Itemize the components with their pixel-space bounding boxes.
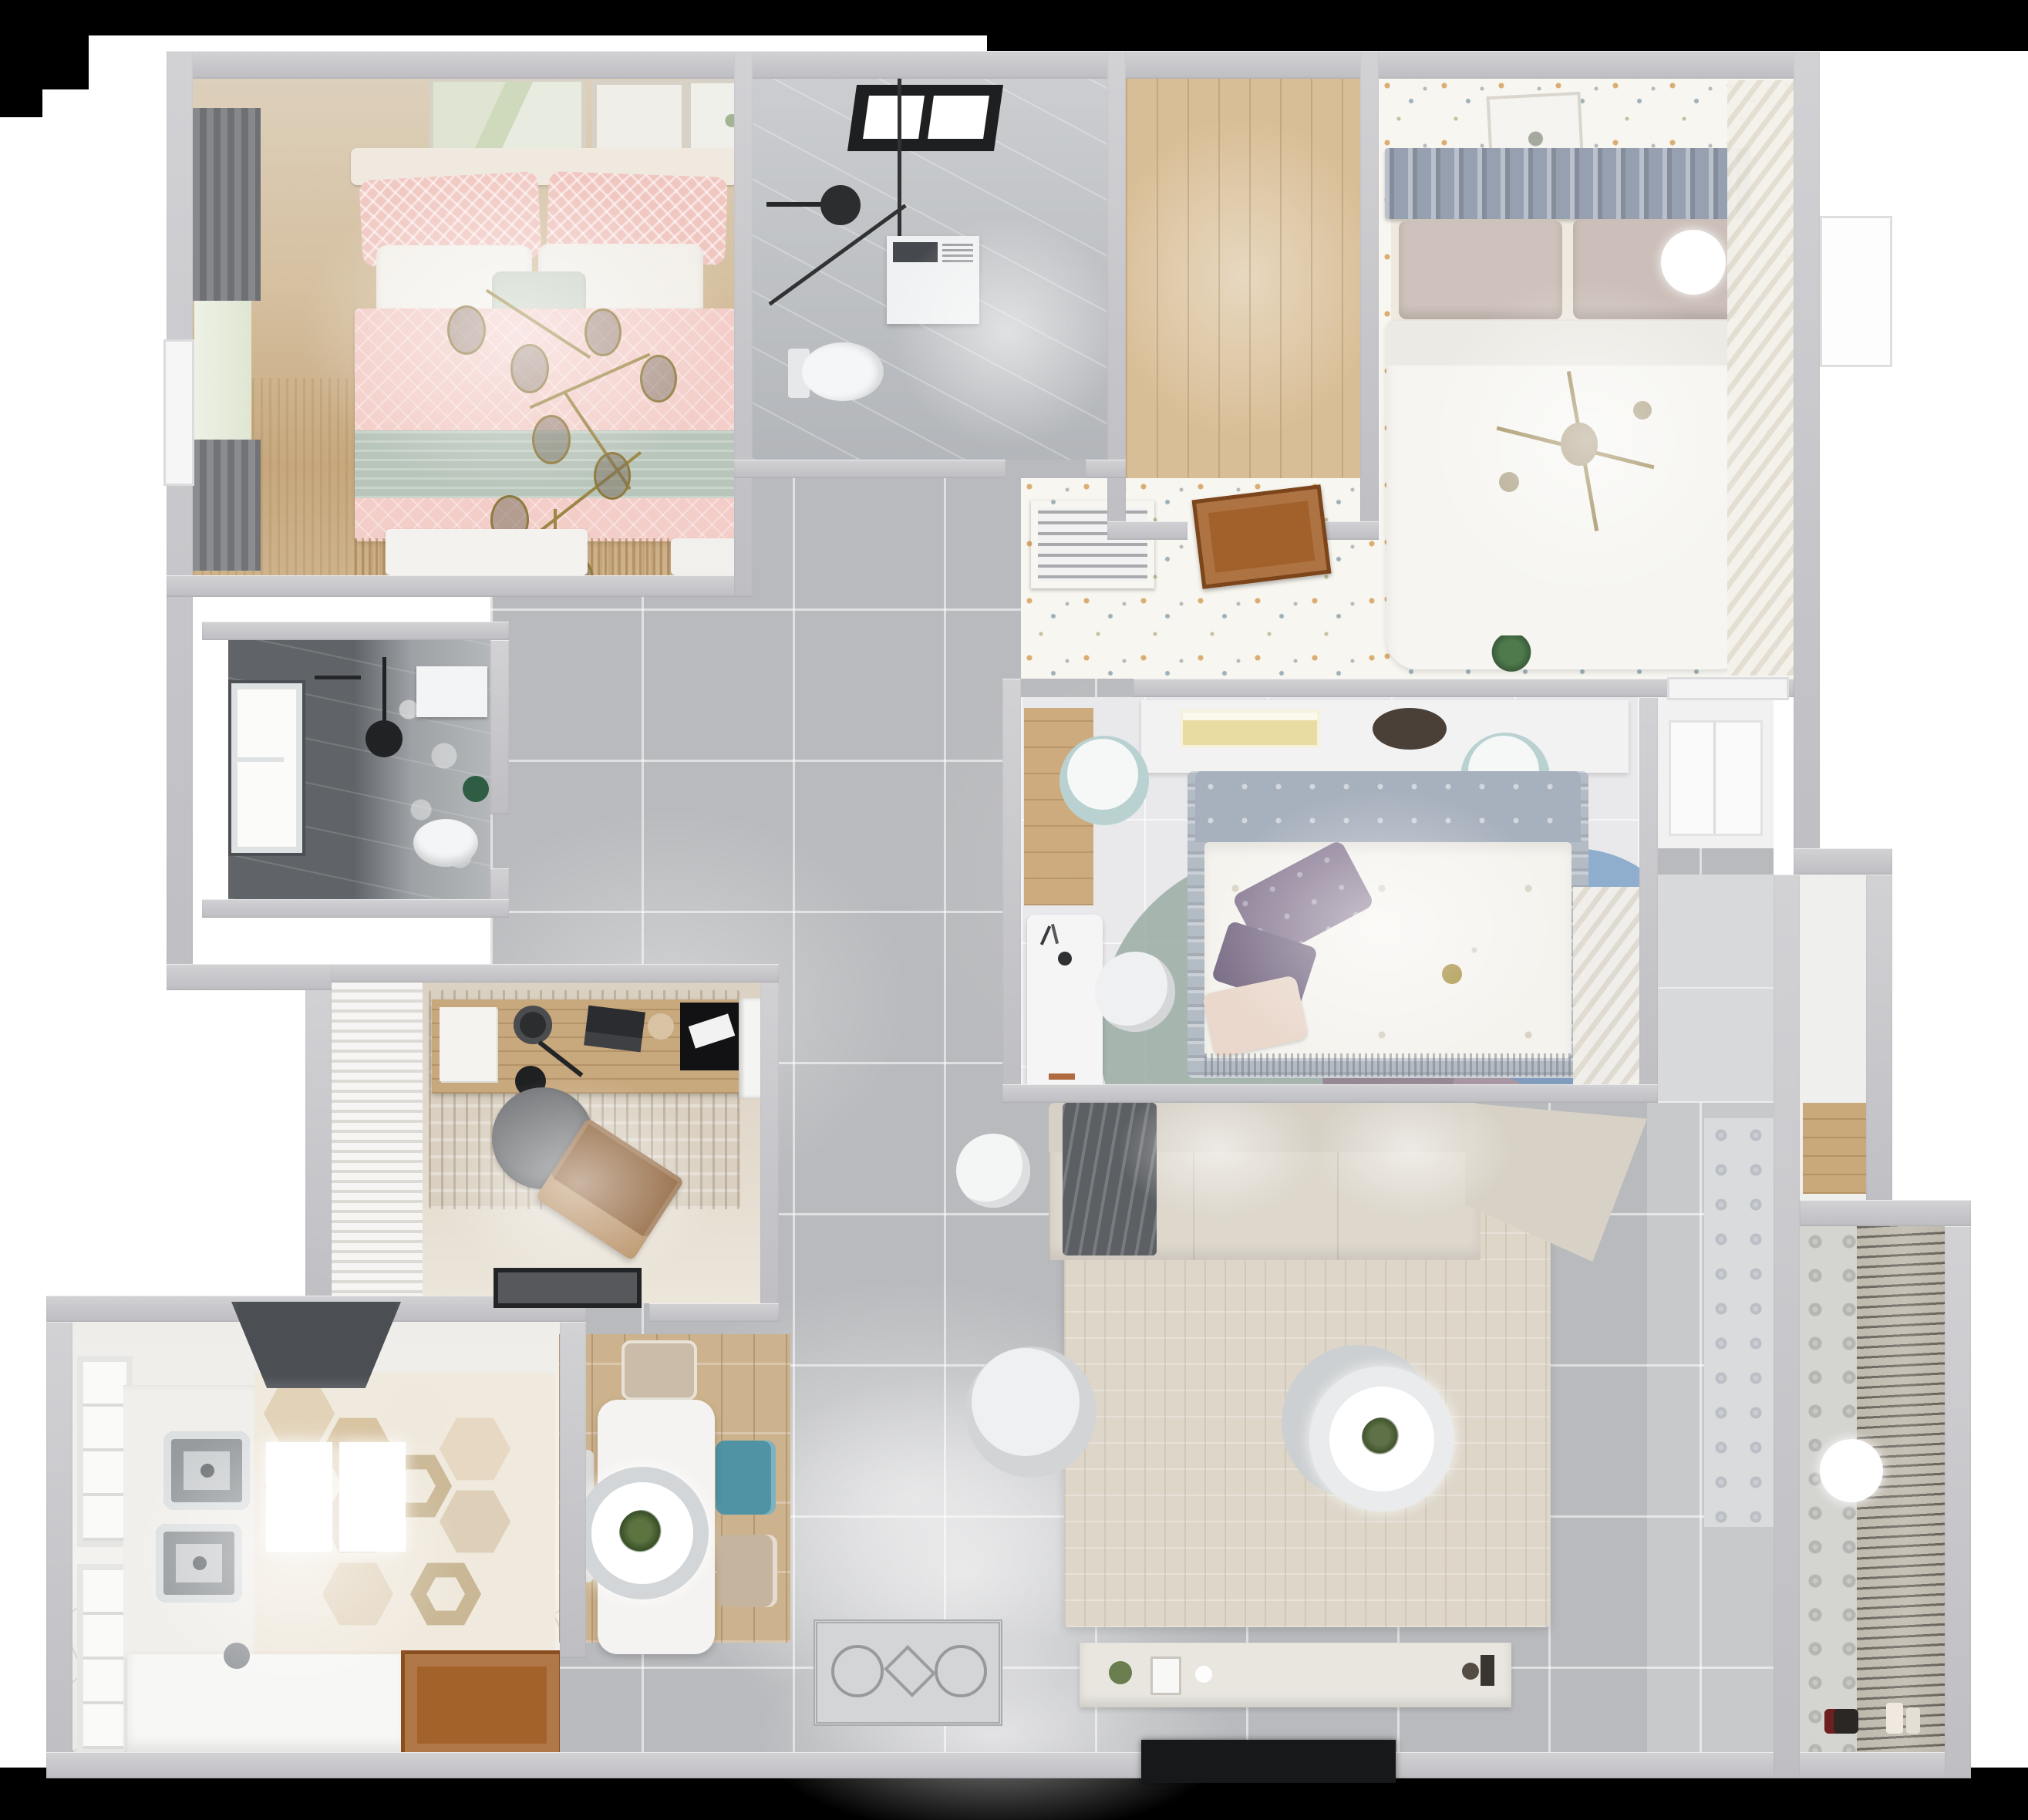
balcony	[1800, 1226, 1945, 1752]
wall-midroom-left	[1002, 679, 1021, 1103]
console-vase-dark	[1481, 1655, 1494, 1686]
toilet-bowl	[802, 342, 884, 401]
hex-tile	[262, 1380, 336, 1447]
bedroom-pink	[193, 77, 734, 575]
tv-screen	[1141, 1740, 1396, 1783]
sink-basin-1	[163, 1431, 250, 1510]
window-mullion	[237, 757, 284, 762]
toy-car	[1824, 1709, 1858, 1734]
slat-shutter-curtain	[332, 982, 423, 1303]
wall-midroom-right	[1639, 697, 1658, 1103]
drain	[200, 1464, 214, 1478]
hex-tile	[321, 1561, 395, 1627]
wall-study-left	[305, 982, 332, 1322]
wall-bath2-top	[202, 622, 509, 640]
wall-top	[173, 51, 1820, 79]
ac-vent	[1030, 500, 1155, 589]
bedroom-white-niche	[1820, 216, 1892, 367]
chandelier-bulb	[584, 308, 622, 356]
chandelier-bulb	[1499, 472, 1519, 492]
curtain-panel-bottom	[193, 440, 261, 571]
bedroom-white-door	[1667, 677, 1789, 700]
wall-foyer-right	[1866, 875, 1892, 1226]
plant	[1487, 635, 1536, 672]
washing-machine	[887, 236, 979, 324]
clay-pot	[648, 1013, 674, 1040]
letterbox-step-left	[0, 35, 89, 89]
foyer-upper-corridor	[1658, 875, 1774, 1103]
tv-console	[1080, 1643, 1511, 1707]
shower-head	[820, 185, 861, 225]
chandelier-bulb	[510, 344, 549, 393]
foyer-niche	[1800, 875, 1866, 1226]
wall-closet-bottom-a	[1107, 521, 1187, 540]
desk-knob	[1058, 952, 1072, 966]
coffee-plant	[1362, 1417, 1402, 1458]
wall-corridor-right	[1774, 875, 1800, 1778]
pendant-plant	[619, 1510, 665, 1556]
wall-kitchen-right	[560, 1322, 586, 1658]
window-pane	[928, 96, 989, 139]
console-plant	[1109, 1661, 1132, 1684]
wall-balcony-right	[1945, 1226, 1971, 1778]
desk-chair	[1095, 952, 1175, 1032]
art-frame-3	[686, 79, 734, 156]
plant	[463, 776, 489, 802]
sheer-curtain	[1727, 80, 1794, 676]
shower-arm	[766, 202, 827, 207]
dining-chair-teal	[716, 1441, 776, 1515]
dining-chair-top	[622, 1340, 697, 1400]
open-wood-door	[1192, 484, 1332, 589]
nightstand	[671, 538, 734, 575]
island-faucet	[224, 1643, 250, 1669]
stool-mint-left	[1059, 736, 1149, 825]
wall-pink-right	[734, 51, 753, 597]
ceiling-light	[1820, 1439, 1883, 1502]
chandelier-bulb	[640, 355, 677, 403]
letterbox-step-left2	[0, 89, 42, 117]
wall-right-upper	[1794, 51, 1820, 875]
sink-basin-2	[156, 1524, 242, 1603]
wall-pink-bottom	[167, 575, 753, 597]
window	[231, 683, 302, 853]
gold-sprig	[1442, 964, 1462, 984]
bottles	[1906, 1707, 1920, 1734]
dining-chair-beige	[717, 1535, 777, 1607]
wall-closet-right	[1360, 51, 1379, 540]
floorplan-canvas	[0, 0, 2028, 1820]
wall-foyer-top	[1794, 848, 1892, 875]
pillow-taupe-left	[1399, 221, 1562, 319]
wall-study-right	[760, 964, 779, 1322]
armchair	[965, 1346, 1097, 1478]
bed-headboard-tufted	[1195, 771, 1581, 842]
wall-midroom-bottom	[1002, 1084, 1658, 1103]
paper-stack	[440, 1007, 497, 1081]
glowing-cabinet-2	[339, 1442, 406, 1552]
side-table	[956, 1134, 1030, 1208]
wall-balcony-top	[1800, 1200, 1971, 1226]
photo-print	[689, 1013, 736, 1048]
window-light	[194, 293, 251, 455]
ceiling-shower-head	[366, 720, 403, 757]
chandelier-bulb	[594, 452, 631, 500]
walkin-closet	[1126, 77, 1360, 521]
black-doormat	[494, 1268, 642, 1308]
hex-tile-motif	[409, 1561, 483, 1627]
toilet	[413, 819, 478, 867]
bathroom-top	[753, 77, 1107, 460]
bed	[1187, 771, 1588, 1080]
letterbox-top-right	[987, 35, 2028, 51]
corridor-light-overlay	[1647, 1103, 1774, 1752]
pens	[1051, 924, 1059, 944]
pens	[1040, 925, 1051, 945]
foyer-closet	[1658, 697, 1774, 848]
chandelier-bulb	[1633, 401, 1652, 420]
wall-bath2-bottom	[202, 899, 509, 918]
wall-bath1-bottom-stub	[1086, 460, 1126, 478]
wall-cabinet	[416, 666, 487, 717]
console-cup	[1195, 1666, 1212, 1683]
bed-foot-fringe	[1204, 1053, 1572, 1077]
letterbox-top	[0, 0, 2028, 35]
closet-door-lines	[1669, 720, 1763, 836]
wall-bath2-right	[490, 640, 509, 814]
hex-tile	[379, 1380, 453, 1447]
sofa-throw-dark	[1063, 1103, 1157, 1255]
pink-bedroom-door	[163, 339, 194, 486]
camera-black	[514, 1006, 552, 1044]
entry-mat	[814, 1619, 1002, 1726]
desk-white	[1027, 915, 1103, 1084]
study	[332, 982, 760, 1303]
copper-handle	[1049, 1073, 1075, 1080]
window-pane	[863, 96, 925, 139]
mat-ornament	[935, 1645, 987, 1697]
headboard-slatted	[1385, 148, 1750, 219]
wood-bench-shelf	[1803, 1103, 1866, 1194]
hex-tile	[438, 1488, 512, 1555]
mat-ornament	[831, 1645, 884, 1697]
sheer-curtain	[1573, 887, 1639, 1084]
ceiling-light	[1661, 230, 1726, 295]
wall-bottom	[46, 1752, 1971, 1778]
bathroom-dark	[228, 640, 490, 899]
drain	[193, 1556, 207, 1570]
wall-left-cap	[167, 964, 332, 990]
chandelier-bulb	[532, 415, 571, 464]
wall-bath1-bottom	[734, 460, 1006, 478]
art-frame-2	[592, 80, 686, 156]
bowl-dark	[1373, 708, 1447, 750]
sconce	[315, 676, 361, 679]
console	[386, 529, 588, 575]
wall-study-top	[305, 964, 779, 982]
headboard-shelf	[1141, 700, 1629, 773]
wall-kitchen-left	[46, 1322, 72, 1778]
duvet-fold	[1386, 321, 1750, 366]
glowing-cabinet-1	[266, 1442, 332, 1552]
hex-tile	[438, 1416, 512, 1482]
photo-frame	[680, 1003, 743, 1070]
pendant-ring-lamp	[576, 1467, 709, 1599]
washer-controls	[893, 242, 938, 262]
bottles	[1886, 1703, 1903, 1734]
curtain-panel-top	[193, 108, 261, 301]
mat-ornament-bar	[884, 1645, 936, 1697]
wood-entry-door	[401, 1650, 560, 1752]
shower-rod	[382, 657, 386, 728]
armchair-seat	[972, 1348, 1080, 1456]
console-frame	[1150, 1657, 1181, 1695]
wall-study-bottom-b	[649, 1303, 779, 1322]
bedroom-middle	[1021, 697, 1639, 1084]
console-vase-dark2	[1462, 1663, 1479, 1680]
laptop	[584, 1006, 645, 1053]
washer-panel-lines	[942, 242, 973, 262]
wall-left-upper	[167, 51, 193, 990]
coffee-table-ring	[1309, 1367, 1454, 1512]
white-cabinet-edge	[739, 998, 760, 1098]
chandelier-hub	[1561, 423, 1598, 466]
chandelier-bulb	[447, 305, 486, 355]
island-counter	[127, 1654, 406, 1752]
bedroom-white	[1379, 77, 1794, 679]
art-frame-leaf	[429, 77, 586, 157]
books	[1180, 709, 1320, 748]
stool-top	[1067, 739, 1138, 810]
hex-inner	[426, 1576, 466, 1612]
